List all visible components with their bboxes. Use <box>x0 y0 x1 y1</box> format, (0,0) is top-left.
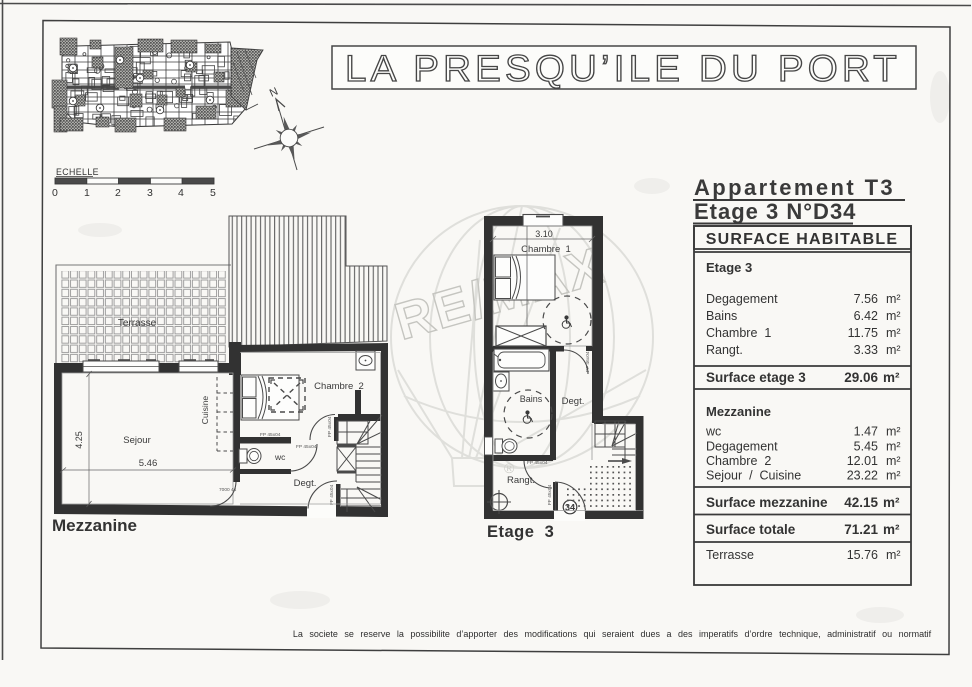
svg-text:m²: m² <box>886 425 901 439</box>
svg-text:m²: m² <box>886 292 901 306</box>
svg-text:wc: wc <box>274 452 286 462</box>
svg-text:Surface mezzanine: Surface mezzanine <box>706 495 828 510</box>
svg-text:Bains: Bains <box>706 309 737 323</box>
svg-text:Sejour: Sejour <box>123 435 150 446</box>
svg-text:1.47: 1.47 <box>854 425 878 439</box>
svg-text:42.15: 42.15 <box>844 495 878 510</box>
svg-text:Mezzanine: Mezzanine <box>706 404 771 419</box>
svg-text:4: 4 <box>178 187 184 199</box>
svg-text:Etage 3: Etage 3 <box>487 523 554 541</box>
svg-text:Cuisine: Cuisine <box>200 396 210 425</box>
svg-text:5.46: 5.46 <box>139 458 158 469</box>
svg-text:wc: wc <box>705 425 721 439</box>
svg-text:SURFACE HABITABLE: SURFACE HABITABLE <box>706 231 899 248</box>
svg-text:4.25: 4.25 <box>74 431 84 449</box>
svg-text:Surface totale: Surface totale <box>706 522 796 537</box>
svg-text:Degagement: Degagement <box>706 440 778 454</box>
svg-text:m²: m² <box>886 326 901 340</box>
svg-text:3: 3 <box>147 187 153 199</box>
svg-text:7.56: 7.56 <box>854 292 878 306</box>
svg-text:Chambre 1: Chambre 1 <box>706 326 771 340</box>
svg-text:Surface etage 3: Surface etage 3 <box>706 370 806 385</box>
svg-text:FF 45x04: FF 45x04 <box>547 484 553 505</box>
svg-text:23.22: 23.22 <box>847 469 878 483</box>
svg-text:LA PRESQU’ILE DU PORT: LA PRESQU’ILE DU PORT <box>345 48 901 89</box>
svg-text:Etage 3: Etage 3 <box>706 260 752 275</box>
svg-text:m²: m² <box>886 454 901 468</box>
svg-text:Etage 3 N°D34: Etage 3 N°D34 <box>694 199 856 224</box>
svg-text:FP 45x04: FP 45x04 <box>327 416 333 437</box>
svg-text:3.10: 3.10 <box>535 229 553 239</box>
svg-text:Terrasse: Terrasse <box>706 548 754 562</box>
svg-text:m²: m² <box>886 309 901 323</box>
svg-text:29.06: 29.06 <box>844 370 878 385</box>
svg-text:6.42: 6.42 <box>854 309 878 323</box>
svg-text:Appartement T3: Appartement T3 <box>694 175 895 200</box>
svg-text:PF 46x04: PF 46x04 <box>585 351 591 372</box>
svg-text:12.01: 12.01 <box>847 454 878 468</box>
svg-text:®: ® <box>504 460 515 476</box>
svg-text:Terrasse: Terrasse <box>118 318 157 329</box>
svg-text:Degt.: Degt. <box>294 478 317 489</box>
svg-text:2: 2 <box>115 187 121 199</box>
svg-text:15.76: 15.76 <box>847 548 878 562</box>
svg-text:m²: m² <box>883 495 900 510</box>
svg-text:FP 45x04: FP 45x04 <box>260 432 281 438</box>
svg-text:Bains: Bains <box>520 394 543 404</box>
svg-text:Chambre 1: Chambre 1 <box>521 244 571 255</box>
svg-text:7000 44: 7000 44 <box>219 487 237 493</box>
svg-text:Chambre 2: Chambre 2 <box>314 381 364 392</box>
svg-text:11.75: 11.75 <box>848 326 878 340</box>
svg-text:ECHELLE: ECHELLE <box>56 167 99 177</box>
svg-text:3.33: 3.33 <box>854 343 878 357</box>
svg-text:m²: m² <box>886 343 901 357</box>
svg-text:FF 45x04: FF 45x04 <box>329 484 335 505</box>
svg-text:Chambre 2: Chambre 2 <box>706 454 771 468</box>
svg-text:FP 45x04: FP 45x04 <box>296 444 317 450</box>
svg-text:0: 0 <box>52 187 58 199</box>
svg-text:Rangt.: Rangt. <box>706 343 743 357</box>
svg-text:FP 45x04: FP 45x04 <box>527 460 548 466</box>
svg-text:m²: m² <box>886 440 901 454</box>
svg-text:71.21: 71.21 <box>844 522 878 537</box>
svg-text:Mezzanine: Mezzanine <box>52 516 137 535</box>
svg-text:Degagement: Degagement <box>706 292 778 306</box>
svg-text:m²: m² <box>886 548 901 562</box>
svg-text:5.45: 5.45 <box>854 440 878 454</box>
svg-text:m²: m² <box>886 469 901 483</box>
svg-text:Degt.: Degt. <box>562 396 585 407</box>
svg-text:m²: m² <box>883 522 900 537</box>
svg-text:Sejour / Cuisine: Sejour / Cuisine <box>706 469 801 483</box>
svg-text:La societe se reserve la possi: La societe se reserve la possibilite d’a… <box>293 629 932 639</box>
svg-text:m²: m² <box>883 370 900 385</box>
svg-text:5: 5 <box>210 187 216 199</box>
svg-text:Rangt.: Rangt. <box>507 475 535 486</box>
svg-text:1: 1 <box>84 187 90 199</box>
svg-text:34: 34 <box>565 503 575 513</box>
